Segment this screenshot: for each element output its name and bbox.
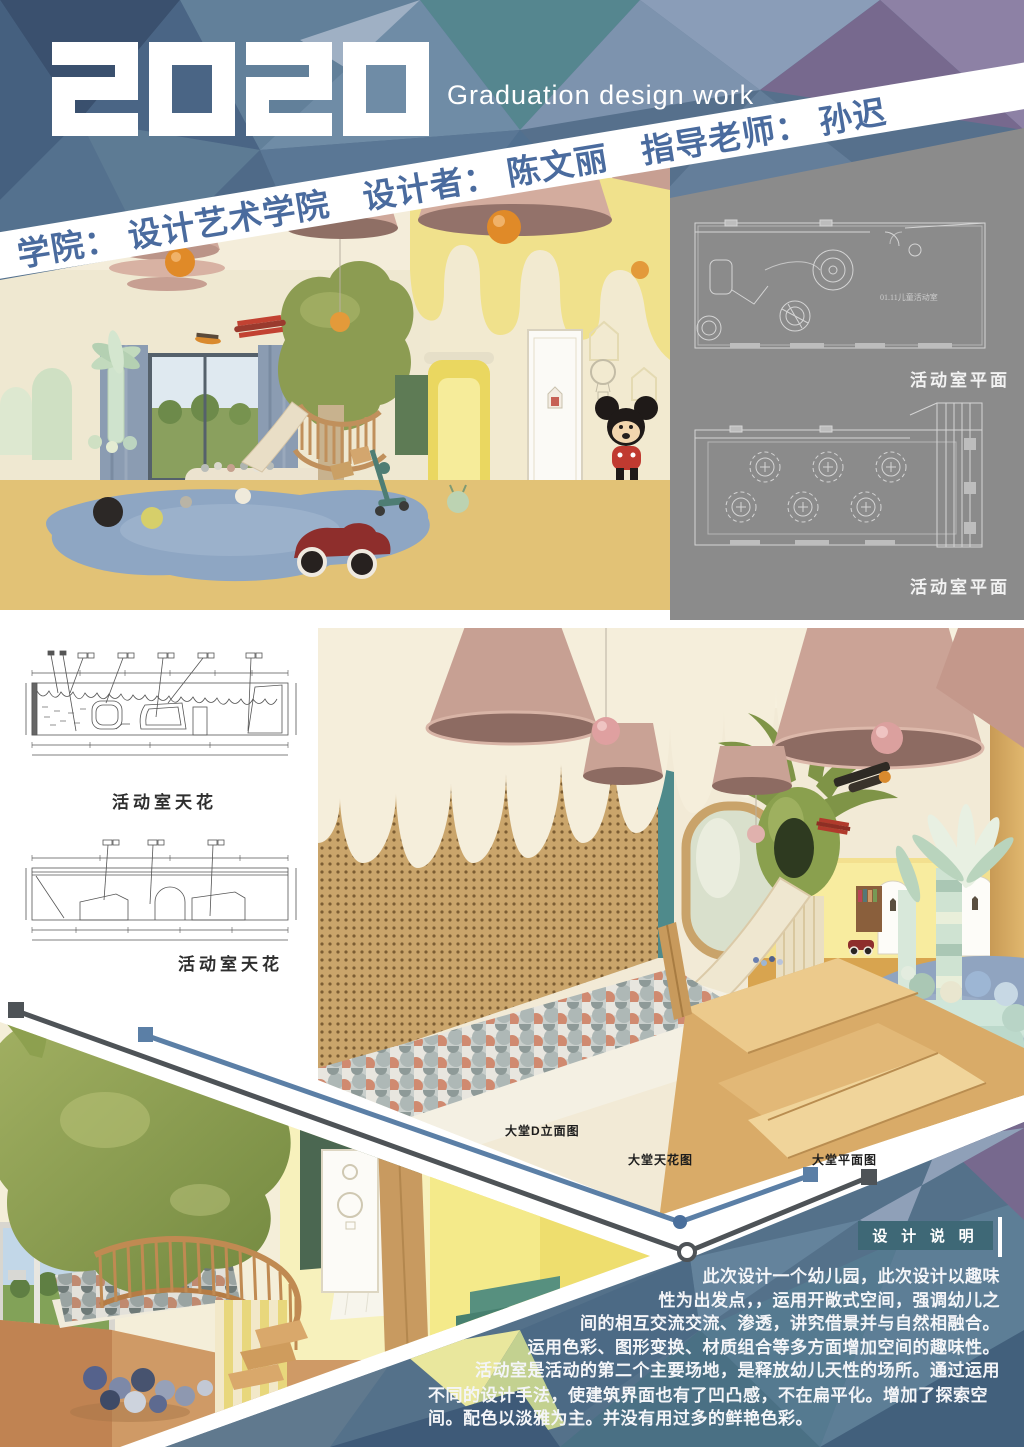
hall-render <box>318 628 1024 1228</box>
hall-plan-label: 大堂平面图 <box>812 1151 877 1168</box>
elevation-drawing-2 <box>20 838 310 963</box>
description-line: 间的相互交流交流、渗透，讲究借景并与自然相融合。 <box>580 1309 1000 1334</box>
plan1-room-label: 01.11儿童活动室 <box>880 292 938 302</box>
digit-0 <box>343 42 429 136</box>
digit-2 <box>246 42 332 136</box>
plan1-caption: 活动室平面 <box>910 366 1010 391</box>
digit-2 <box>52 42 138 136</box>
description-line: 性为出发点，，运用开敞式空间，强调幼儿之 <box>659 1286 1001 1311</box>
hall-ceiling-label: 大堂天花图 <box>628 1151 693 1168</box>
cad-plan-panel: 01.11儿童活动室 <box>670 120 1024 620</box>
poster-subtitle: Graduation design work <box>447 80 754 111</box>
description-line: 活动室是活动的第二个主要场地，是释放幼儿天性的场所。通过运用 <box>475 1356 1000 1381</box>
elevation-drawing-1 <box>20 645 310 785</box>
description-title: 设 计 说 明 <box>858 1221 993 1250</box>
plan2-caption: 活动室平面 <box>910 573 1010 598</box>
description-line: 不同的设计手法，使建筑界面也有了凹凸感，不在扁平化。增加了探索空 <box>428 1381 988 1406</box>
description-line: 运用色彩、图形变换、材质组合等多方面增加空间的趣味性。 <box>528 1333 1001 1358</box>
poster: 01.11儿童活动室 <box>0 0 1024 1447</box>
description-line: 间。配色以淡雅为主。并没有用过多的鲜艳色彩。 <box>428 1404 813 1429</box>
elevation2-caption: 活动室天花 <box>178 950 283 975</box>
year-2020: 2020 <box>52 42 429 136</box>
description-line: 此次设计一个幼儿园，此次设计以趣味 <box>703 1262 1001 1287</box>
description-title-bar <box>998 1217 1002 1257</box>
digit-0 <box>149 42 235 136</box>
elevation1-caption: 活动室天花 <box>112 788 217 813</box>
hall-elevation-label: 大堂D立面图 <box>505 1122 580 1139</box>
